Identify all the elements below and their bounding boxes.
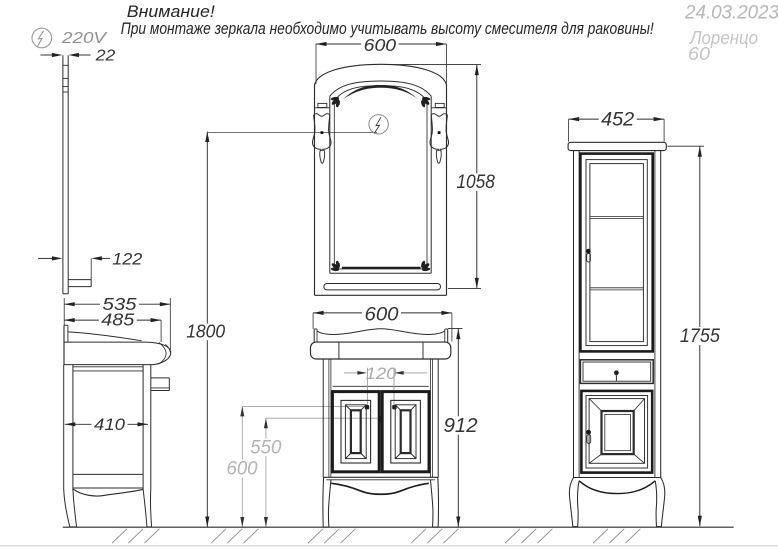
svg-text:120: 120 (366, 364, 398, 383)
svg-text:122: 122 (112, 250, 143, 269)
svg-text:452: 452 (601, 110, 634, 131)
svg-text:1800: 1800 (186, 322, 225, 342)
svg-text:600: 600 (227, 458, 258, 480)
svg-text:410: 410 (94, 415, 126, 434)
svg-text:60: 60 (688, 43, 711, 64)
svg-text:1755: 1755 (680, 325, 720, 347)
svg-text:550: 550 (250, 437, 281, 458)
svg-text:1058: 1058 (456, 172, 495, 193)
svg-text:24.03.2023: 24.03.2023 (684, 3, 778, 24)
svg-text:220V: 220V (61, 30, 108, 47)
svg-text:600: 600 (364, 35, 397, 55)
svg-text:485: 485 (101, 310, 134, 330)
svg-text:912: 912 (444, 415, 478, 437)
svg-text:22: 22 (95, 48, 116, 65)
svg-text:Внимание!: Внимание! (127, 3, 215, 21)
svg-text:600: 600 (365, 305, 399, 326)
